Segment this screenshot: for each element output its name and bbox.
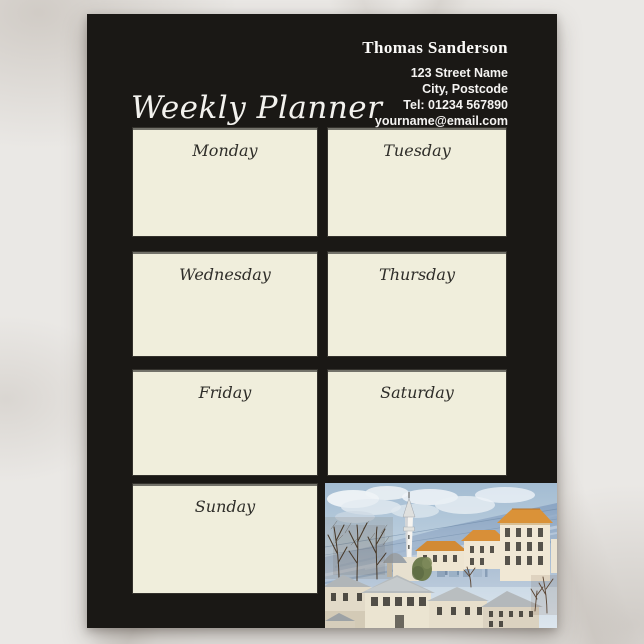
contact-phone-line: Tel: 01234 567890 [362, 97, 508, 113]
letterhead-page: Thomas Sanderson 123 Street Name City, P… [87, 14, 557, 628]
watercolor-artwork-image [325, 483, 557, 628]
contact-email-line: yourname@email.com [362, 113, 508, 129]
marble-surface: Thomas Sanderson 123 Street Name City, P… [0, 0, 644, 644]
day-label: Monday [192, 141, 257, 160]
day-box-monday: Monday [133, 128, 317, 236]
day-box-friday: Friday [133, 370, 317, 475]
day-box-tuesday: Tuesday [328, 128, 506, 236]
contact-address: 123 Street Name City, Postcode Tel: 0123… [362, 65, 508, 129]
day-label: Wednesday [179, 265, 271, 284]
day-label: Sunday [195, 497, 255, 516]
contact-name: Thomas Sanderson [362, 38, 508, 58]
green-tree [412, 557, 432, 581]
day-box-wednesday: Wednesday [133, 252, 317, 356]
day-label: Saturday [380, 383, 454, 402]
contact-block: Thomas Sanderson 123 Street Name City, P… [362, 38, 508, 129]
day-label: Tuesday [383, 141, 450, 160]
weekly-planner-title: Weekly Planner [131, 90, 382, 126]
bare-trees-left [325, 517, 393, 581]
day-box-saturday: Saturday [328, 370, 506, 475]
day-box-thursday: Thursday [328, 252, 506, 356]
day-label: Friday [199, 383, 252, 402]
townscape-painting [325, 483, 557, 628]
day-box-sunday: Sunday [133, 484, 317, 593]
contact-address-line: City, Postcode [362, 81, 508, 97]
contact-address-line: 123 Street Name [362, 65, 508, 81]
day-label: Thursday [379, 265, 455, 284]
